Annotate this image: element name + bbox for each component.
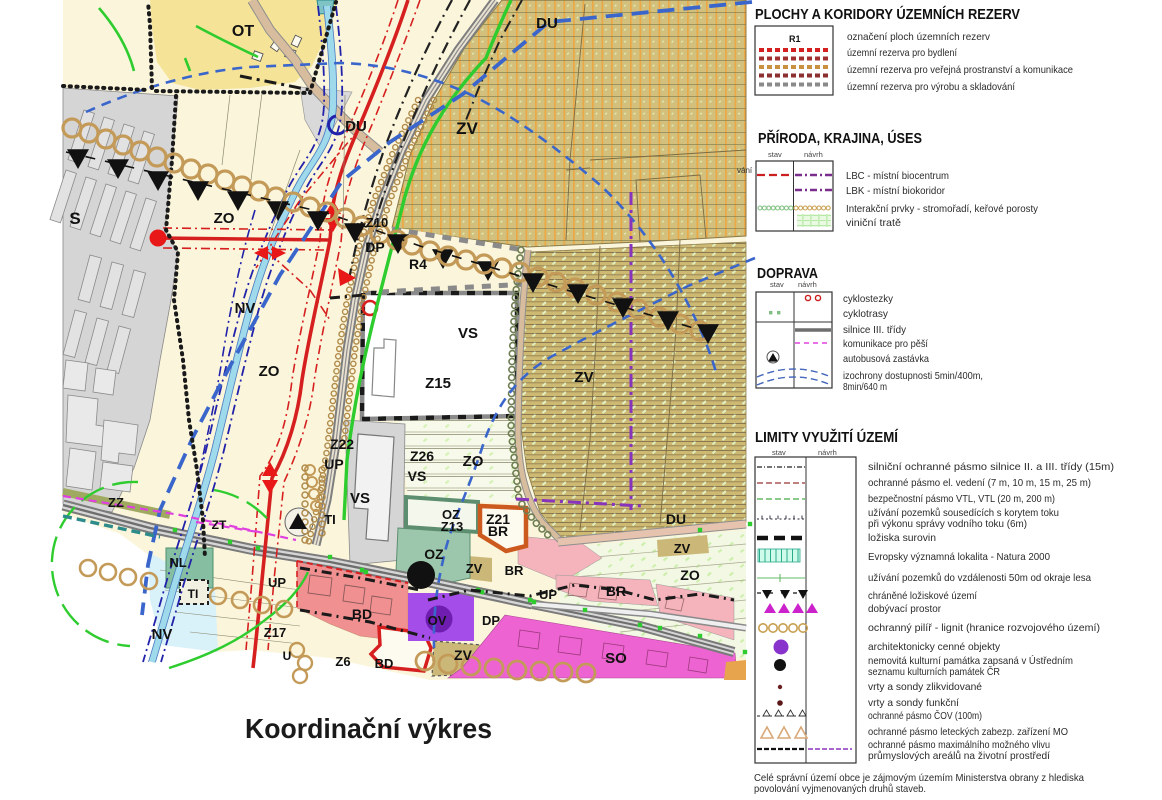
svg-text:R4: R4 (409, 256, 427, 272)
svg-text:U: U (283, 649, 292, 663)
svg-text:LBC - místní biocentrum: LBC - místní biocentrum (846, 170, 949, 182)
svg-text:územní rezerva pro výrobu a sk: územní rezerva pro výrobu a skladování (847, 81, 1015, 93)
svg-text:DU: DU (666, 511, 686, 527)
svg-text:DP: DP (365, 239, 384, 255)
svg-text:ZO: ZO (259, 363, 280, 380)
svg-text:NV: NV (152, 626, 173, 643)
svg-text:ochranné pásmo ČOV (100m): ochranné pásmo ČOV (100m) (868, 709, 982, 722)
svg-text:návrh: návrh (818, 448, 837, 457)
svg-text:vání: vání (737, 166, 753, 175)
svg-text:označení ploch územních rezerv: označení ploch územních rezerv (847, 31, 991, 43)
svg-text:cyklotrasy: cyklotrasy (843, 308, 889, 320)
svg-text:Koordinační výkres: Koordinační výkres (245, 713, 492, 744)
svg-text:BR: BR (488, 523, 508, 539)
svg-text:ZZ: ZZ (108, 495, 124, 510)
svg-text:PLOCHY A KORIDORY ÚZEMNÍCH REZ: PLOCHY A KORIDORY ÚZEMNÍCH REZERV (755, 5, 1020, 23)
svg-text:ZV: ZV (454, 647, 473, 663)
svg-text:silnice III. třídy: silnice III. třídy (843, 324, 907, 336)
svg-text:ZO: ZO (214, 210, 235, 227)
svg-text:návrh: návrh (798, 280, 817, 289)
svg-text:Z22: Z22 (330, 436, 354, 452)
svg-text:UP: UP (324, 456, 343, 472)
svg-text:ochranné pásmo el. vedení (7 m: ochranné pásmo el. vedení (7 m, 10 m, 15… (868, 477, 1091, 489)
svg-text:LBK - místní biokoridor: LBK - místní biokoridor (846, 185, 945, 197)
svg-text:TI: TI (324, 512, 336, 527)
svg-text:stav: stav (768, 150, 782, 159)
svg-text:seznamu kulturních památek ČR: seznamu kulturních památek ČR (868, 665, 1000, 678)
svg-text:UP: UP (268, 575, 286, 590)
svg-text:návrh: návrh (804, 150, 823, 159)
svg-text:ZT: ZT (212, 518, 227, 532)
svg-text:povolování vyjmenovaných druhů: povolování vyjmenovaných druhů staveb. (754, 783, 926, 795)
svg-text:ochranné pásmo leteckých zabez: ochranné pásmo leteckých zabezp. zařízen… (868, 726, 1068, 738)
svg-text:autobusová zastávka: autobusová zastávka (843, 353, 929, 365)
svg-text:ZO: ZO (463, 453, 484, 470)
svg-text:OZ: OZ (424, 546, 444, 562)
svg-text:DP: DP (482, 613, 500, 628)
svg-text:Z13: Z13 (441, 519, 463, 534)
svg-text:OT: OT (232, 23, 254, 40)
svg-text:viniční tratě: viniční tratě (846, 217, 901, 229)
svg-text:BR: BR (505, 563, 524, 578)
svg-text:NV: NV (235, 300, 256, 317)
svg-text:komunikace pro pěší: komunikace pro pěší (843, 338, 928, 350)
svg-text:NL: NL (169, 555, 186, 570)
svg-text:stav: stav (772, 448, 786, 457)
svg-text:BR: BR (606, 583, 626, 599)
svg-text:VS: VS (350, 490, 370, 507)
svg-text:DU: DU (536, 15, 558, 32)
svg-text:ochranný pilíř - lignit (hrani: ochranný pilíř - lignit (hranice rozvojo… (868, 622, 1100, 634)
svg-text:ZV: ZV (456, 119, 478, 138)
svg-text:8min/640 m: 8min/640 m (843, 381, 887, 393)
svg-text:architektonicky cenné objekty: architektonicky cenné objekty (868, 641, 1001, 653)
svg-text:silniční ochranné pásmo silnic: silniční ochranné pásmo silnice II. a II… (868, 461, 1114, 473)
svg-text:Z10: Z10 (366, 215, 388, 230)
svg-text:DU: DU (345, 118, 367, 135)
svg-text:Z26: Z26 (410, 448, 434, 464)
svg-text:BD: BD (375, 656, 394, 671)
svg-text:cyklostezky: cyklostezky (843, 293, 894, 305)
svg-text:Interakční prvky - stromořadí,: Interakční prvky - stromořadí, keřové po… (846, 203, 1039, 215)
svg-text:OV: OV (428, 613, 447, 628)
svg-text:ložiska surovin: ložiska surovin (868, 532, 936, 544)
svg-text:Z6: Z6 (335, 654, 350, 669)
svg-text:stav: stav (770, 280, 784, 289)
svg-text:při výkonu správy vodního toku: při výkonu správy vodního toku (6m) (868, 518, 1027, 530)
svg-text:ZV: ZV (674, 541, 691, 556)
svg-text:TI: TI (188, 587, 199, 601)
svg-text:PŘÍRODA, KRAJINA, ÚSES: PŘÍRODA, KRAJINA, ÚSES (758, 129, 922, 147)
svg-text:R1: R1 (789, 34, 801, 44)
svg-text:ZO: ZO (680, 567, 700, 583)
svg-text:VS: VS (408, 468, 427, 484)
svg-text:BD: BD (352, 606, 372, 622)
svg-text:SO: SO (605, 650, 627, 667)
svg-text:vrty a sondy zlikvidované: vrty a sondy zlikvidované (868, 681, 982, 693)
svg-text:ZV: ZV (574, 369, 593, 386)
svg-text:Z15: Z15 (425, 375, 451, 392)
svg-text:průmyslových areálů na životní: průmyslových areálů na životní prostředí (868, 750, 1050, 762)
svg-text:dobývací prostor: dobývací prostor (868, 603, 941, 615)
svg-text:bezpečnostní pásmo VTL, VTL (2: bezpečnostní pásmo VTL, VTL (20 m, 200 m… (868, 493, 1055, 505)
svg-text:VS: VS (458, 325, 478, 342)
svg-text:ZV: ZV (466, 561, 483, 576)
svg-text:vrty a sondy funkční: vrty a sondy funkční (868, 697, 959, 709)
svg-text:UP: UP (539, 587, 557, 602)
svg-text:územní rezerva pro bydlení: územní rezerva pro bydlení (847, 47, 957, 59)
svg-text:chráněné ložiskové území: chráněné ložiskové území (868, 590, 977, 602)
svg-text:užívání pozemků do vzdálenosti: užívání pozemků do vzdálenosti 50m od ok… (868, 572, 1091, 584)
svg-text:Evropsky významná lokalita - N: Evropsky významná lokalita - Natura 2000 (868, 551, 1050, 563)
svg-text:LIMITY VYUŽITÍ ÚZEMÍ: LIMITY VYUŽITÍ ÚZEMÍ (755, 428, 899, 446)
svg-text:územní rezerva pro veřejná pro: územní rezerva pro veřejná prostranství … (847, 64, 1073, 76)
svg-text:S: S (69, 209, 80, 228)
svg-text:Z17: Z17 (264, 625, 286, 640)
